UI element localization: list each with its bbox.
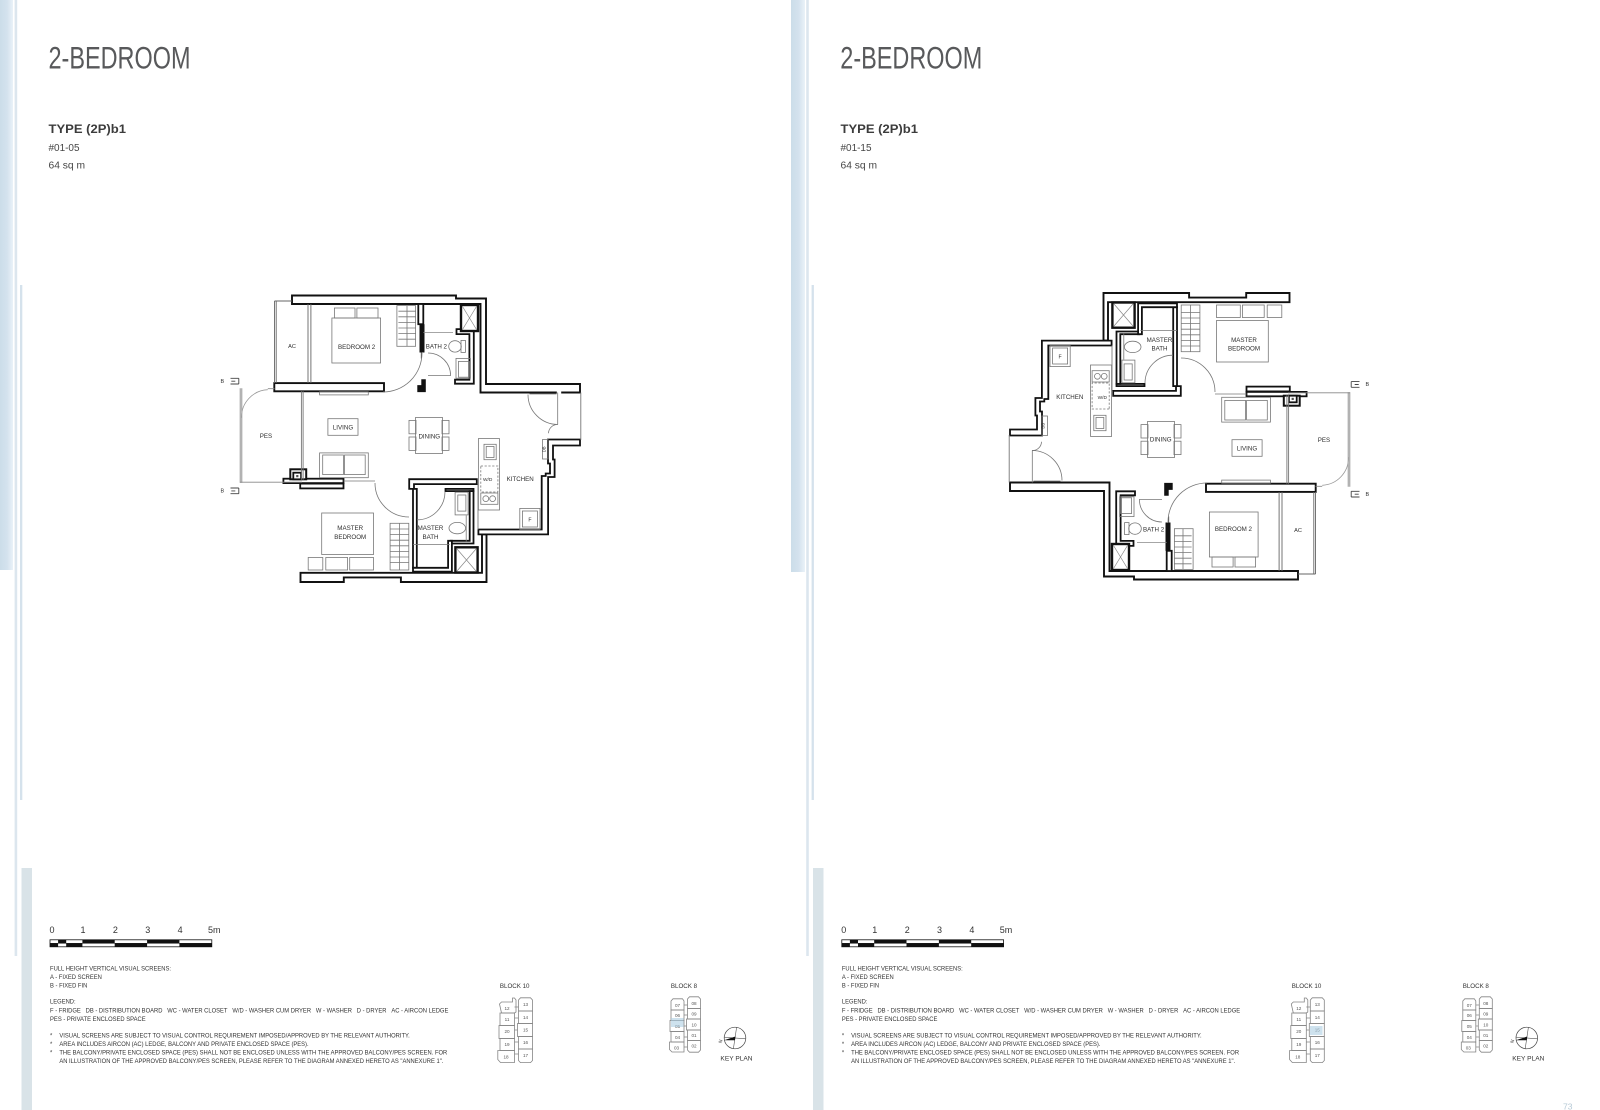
svg-text:PES: PES xyxy=(1318,437,1330,444)
svg-text:LIVING: LIVING xyxy=(333,425,353,432)
svg-text:AREA INCLUDES AIRCON (AC) LEDG: AREA INCLUDES AIRCON (AC) LEDGE, BALCONY… xyxy=(59,1041,309,1048)
svg-text:BATH: BATH xyxy=(1151,345,1167,352)
svg-text:04: 04 xyxy=(675,1035,681,1040)
svg-text:02: 02 xyxy=(691,1044,697,1049)
svg-text:17: 17 xyxy=(523,1053,529,1058)
svg-text:4: 4 xyxy=(178,925,183,935)
svg-text:BATH 2: BATH 2 xyxy=(1143,527,1165,534)
svg-text:09: 09 xyxy=(691,1012,697,1017)
svg-text:LEGEND:: LEGEND: xyxy=(50,998,76,1005)
svg-text:BLOCK 8: BLOCK 8 xyxy=(671,983,698,990)
svg-text:64 sq m: 64 sq m xyxy=(841,161,878,172)
svg-text:*: * xyxy=(50,1032,53,1039)
svg-text:PES: PES xyxy=(260,433,272,440)
svg-text:2-BEDROOM: 2-BEDROOM xyxy=(840,40,982,76)
svg-text:08: 08 xyxy=(691,1001,697,1006)
svg-text:W/D: W/D xyxy=(1098,395,1108,401)
svg-text:KITCHEN: KITCHEN xyxy=(507,476,534,483)
svg-text:TYPE (2P)b1: TYPE (2P)b1 xyxy=(841,124,919,136)
svg-text:#01-05: #01-05 xyxy=(49,143,80,154)
svg-text:07: 07 xyxy=(675,1003,681,1008)
svg-text:2: 2 xyxy=(113,925,118,935)
svg-text:14: 14 xyxy=(523,1015,529,1020)
svg-text:*: * xyxy=(50,1041,53,1048)
svg-text:18: 18 xyxy=(503,1055,509,1060)
svg-text:KEY PLAN: KEY PLAN xyxy=(720,1056,752,1063)
svg-text:THE BALCONY/PRIVATE ENCLOSED S: THE BALCONY/PRIVATE ENCLOSED SPACE (PES)… xyxy=(59,1049,447,1056)
svg-text:DB: DB xyxy=(541,446,546,452)
svg-text:20: 20 xyxy=(504,1029,510,1034)
svg-text:F - FRIDGE DB - DISTRIBUTION: F - FRIDGE DB - DISTRIBUTION BOARD WC - … xyxy=(50,1007,448,1014)
svg-text:TYPE (2P)b1: TYPE (2P)b1 xyxy=(49,124,127,136)
svg-text:DINING: DINING xyxy=(1150,436,1172,443)
svg-text:19: 19 xyxy=(504,1042,510,1047)
svg-text:BEDROOM 2: BEDROOM 2 xyxy=(1215,526,1253,533)
svg-text:DINING: DINING xyxy=(418,434,440,441)
svg-text:*: * xyxy=(50,1049,53,1056)
svg-text:BATH 2: BATH 2 xyxy=(426,343,448,350)
svg-text:MASTER: MASTER xyxy=(418,525,444,532)
svg-text:B - FIXED FIN: B - FIXED FIN xyxy=(50,982,87,989)
svg-text:AC: AC xyxy=(1294,528,1302,534)
svg-text:N: N xyxy=(718,1038,725,1044)
svg-text:F: F xyxy=(528,517,531,523)
svg-text:12: 12 xyxy=(504,1006,510,1011)
svg-text:16: 16 xyxy=(523,1040,529,1045)
svg-text:BATH: BATH xyxy=(422,534,438,541)
svg-text:AC: AC xyxy=(288,344,296,350)
svg-text:11: 11 xyxy=(505,1017,510,1022)
svg-text:W/D: W/D xyxy=(483,477,493,483)
svg-text:PES - PRIVATE ENCLOSED SPACE: PES - PRIVATE ENCLOSED SPACE xyxy=(50,1016,146,1023)
svg-text:15: 15 xyxy=(523,1028,529,1033)
svg-text:1: 1 xyxy=(81,925,86,935)
svg-text:BEDROOM: BEDROOM xyxy=(1228,345,1260,352)
svg-text:0: 0 xyxy=(50,925,55,935)
svg-text:AN ILLUSTRATION OF THE APPROVE: AN ILLUSTRATION OF THE APPROVED BALCONY/… xyxy=(59,1058,443,1065)
svg-text:B: B xyxy=(221,489,225,495)
svg-text:BEDROOM: BEDROOM xyxy=(334,534,366,541)
svg-text:LIVING: LIVING xyxy=(1237,446,1257,453)
svg-text:06: 06 xyxy=(675,1013,681,1018)
svg-text:3: 3 xyxy=(145,925,150,935)
svg-text:#01-15: #01-15 xyxy=(841,143,872,154)
svg-text:B: B xyxy=(1366,382,1370,388)
svg-text:MASTER: MASTER xyxy=(337,525,363,532)
svg-text:BEDROOM 2: BEDROOM 2 xyxy=(338,344,376,351)
svg-text:2-BEDROOM: 2-BEDROOM xyxy=(49,40,191,76)
svg-text:DB: DB xyxy=(1041,423,1046,429)
svg-text:5m: 5m xyxy=(208,925,221,935)
svg-text:01: 01 xyxy=(691,1033,697,1038)
svg-text:03: 03 xyxy=(674,1046,680,1051)
svg-text:MASTER: MASTER xyxy=(1147,337,1173,344)
svg-text:B: B xyxy=(1366,492,1370,498)
svg-text:VISUAL SCREENS ARE SUBJECT TO: VISUAL SCREENS ARE SUBJECT TO VISUAL CON… xyxy=(59,1032,410,1039)
svg-text:FULL HEIGHT VERTICAL VISUAL SC: FULL HEIGHT VERTICAL VISUAL SCREENS: xyxy=(50,965,171,972)
svg-text:MASTER: MASTER xyxy=(1231,337,1257,344)
svg-text:BLOCK 10: BLOCK 10 xyxy=(500,983,530,990)
svg-text:F: F xyxy=(1059,355,1062,361)
svg-text:KITCHEN: KITCHEN xyxy=(1056,394,1083,401)
svg-text:A - FIXED SCREEN: A - FIXED SCREEN xyxy=(50,974,102,981)
svg-text:13: 13 xyxy=(523,1002,529,1007)
svg-text:73: 73 xyxy=(1563,1102,1573,1110)
svg-text:10: 10 xyxy=(691,1023,697,1028)
svg-text:64 sq m: 64 sq m xyxy=(49,161,86,172)
svg-text:B: B xyxy=(221,379,225,385)
